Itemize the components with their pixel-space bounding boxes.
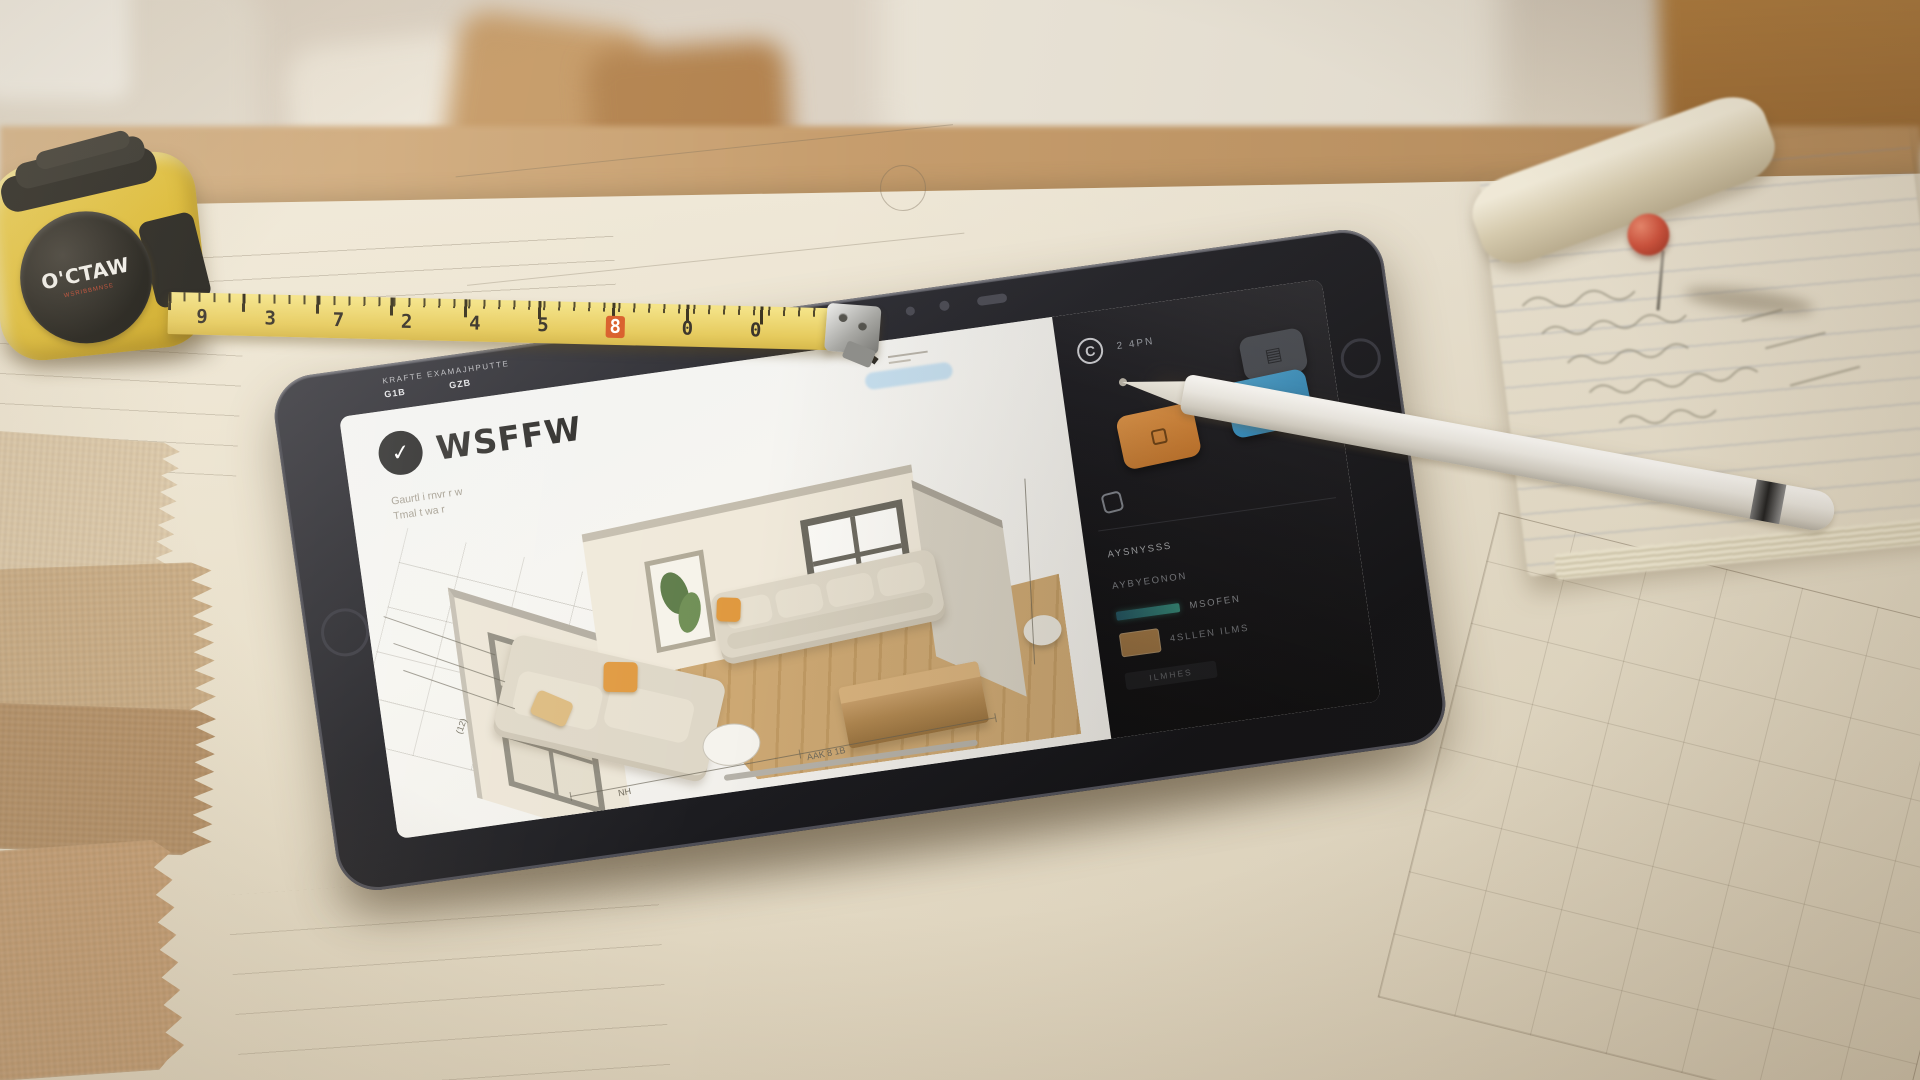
front-camera-array	[905, 287, 1036, 319]
fabric-swatch	[0, 702, 216, 857]
selection-highlight[interactable]	[864, 361, 954, 390]
fabric-swatch	[0, 562, 217, 721]
ruler-number: 4	[469, 312, 481, 334]
dimension-label: NH	[617, 786, 632, 798]
ruler-number: 2	[401, 311, 413, 333]
bezel-tab: G1B	[384, 387, 407, 400]
camera-ring	[1338, 336, 1383, 381]
hook-rivet	[838, 313, 848, 323]
material-swatch[interactable]	[1119, 628, 1162, 657]
photo-scene: KRAFTE EXAMAJHPUTTE G1B GZB ✓ WSFFW Gaur…	[0, 0, 1920, 1080]
fabric-swatch	[0, 429, 181, 581]
sofa-cushion	[876, 561, 927, 598]
orange-pillow	[716, 597, 741, 622]
tape-end-hook	[824, 303, 882, 355]
sofa-cushion	[774, 582, 825, 619]
hook-rivet	[858, 321, 868, 331]
background-white-object	[0, 0, 130, 100]
ruler-number: 0	[750, 319, 762, 341]
panel-status-label: 2 4PN	[1116, 336, 1155, 352]
panel-row-label: AYSNYSSS	[1107, 540, 1173, 560]
home-button[interactable]	[318, 605, 372, 659]
panel-row-label: MSOFEN	[1189, 593, 1241, 611]
canvas-toolbar[interactable]	[861, 331, 1015, 391]
panel-row-label: ILMHES	[1149, 667, 1194, 683]
panel-row-label: AYBYEONON	[1111, 570, 1187, 591]
app-title: WSFFW	[434, 408, 585, 467]
toolbar-line	[889, 359, 911, 364]
sofa-cushion	[825, 571, 876, 608]
floorplan-canvas[interactable]: (12) NH AAK 8 1B	[380, 434, 1064, 814]
panel-row-label: 4SLLEN ILMS	[1169, 622, 1250, 644]
c-ring-icon[interactable]: C	[1075, 336, 1104, 365]
grid-icon: ▤	[1263, 343, 1284, 367]
blueprint-sketch-circle	[880, 165, 926, 211]
ruler-number: 3	[264, 307, 276, 329]
orange-pillow	[603, 662, 638, 693]
app-main-area: ✓ WSFFW Gaurtl i rnvr r w Tmal t wa r	[339, 317, 1111, 839]
tape-brand-face: O'CTAW WSRIBBMNSE	[8, 199, 165, 356]
stylus-tip	[1120, 369, 1190, 407]
panel-checkbox[interactable]	[1100, 490, 1124, 514]
check-circle-icon: ✓	[376, 428, 426, 478]
app-logo: ✓ WSFFW	[376, 406, 585, 478]
fabric-swatch	[0, 839, 186, 1080]
bezel-tab: GZB	[449, 377, 472, 390]
ruler-number-highlighted: 8	[605, 316, 625, 338]
teal-progress-bar	[1116, 603, 1181, 621]
floorplan-art-frame[interactable]	[644, 549, 716, 653]
square-icon	[1150, 427, 1168, 445]
app-side-panel: C 2 4PN ▤ ▶ AYSNYSSS AYBYEONON MSOFEN	[1052, 279, 1381, 739]
toolbar-line	[888, 351, 928, 359]
ruler-number: 0	[681, 318, 693, 340]
panel-value-pill: ILMHES	[1124, 660, 1217, 690]
ruler-number: 9	[196, 306, 208, 328]
ruler-number: 7	[332, 309, 344, 331]
ruler-number: 5	[537, 314, 549, 336]
